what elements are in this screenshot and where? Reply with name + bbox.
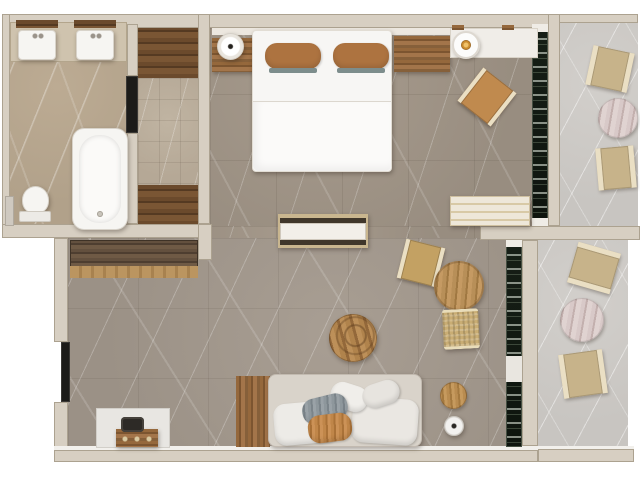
- balcony-chair: [595, 145, 637, 190]
- bed-duvet: [253, 101, 391, 171]
- wall-hall-bedroom: [198, 14, 210, 224]
- wall-left-living-upper: [54, 238, 68, 342]
- wall-left-living-lower: [54, 402, 68, 452]
- pendant-bulb-icon: [461, 40, 471, 50]
- bathroom-door: [126, 76, 138, 133]
- bathtub-basin: [79, 135, 121, 223]
- hall-wardrobe-top: [138, 26, 198, 78]
- wall-right-bedroom: [548, 14, 560, 226]
- faucet-icon: [32, 33, 44, 39]
- double-bed: [252, 30, 392, 172]
- wall-right-living: [522, 240, 538, 446]
- wicker-chair: [442, 308, 480, 350]
- balcony-chair: [558, 349, 608, 399]
- wall-top-balcony: [558, 14, 638, 23]
- bathtub-drain-icon: [97, 211, 103, 217]
- wall-horizontal-right: [480, 226, 640, 240]
- media-console: [278, 214, 368, 248]
- pendant-lamp: [452, 31, 480, 59]
- side-table: [440, 382, 467, 409]
- entry-door: [61, 342, 70, 402]
- bedroom-curtain-bottom: [532, 218, 548, 226]
- wall-bath-hall-lower: [127, 133, 138, 224]
- pillow-left-trim: [269, 68, 317, 73]
- sideboard: [70, 240, 198, 278]
- living-curtain-mid: [506, 356, 522, 382]
- chest-studs: [122, 436, 152, 442]
- toilet-tank: [19, 211, 51, 222]
- faucet-icon: [90, 33, 102, 39]
- desk-bracket-right: [502, 25, 514, 30]
- toiletry-shelf: [5, 196, 14, 226]
- floor-plan: [0, 0, 640, 480]
- balcony-chair: [585, 45, 634, 93]
- balcony-table: [598, 98, 638, 138]
- luggage-bench: [450, 196, 530, 226]
- pillow-left: [265, 43, 321, 69]
- stool: [444, 416, 464, 436]
- balcony-table: [560, 298, 604, 342]
- mirror-left: [16, 20, 58, 28]
- dining-table: [434, 261, 484, 311]
- pillow-right-trim: [337, 68, 385, 73]
- sink-right: [76, 30, 114, 60]
- nightstand-right: [394, 36, 450, 72]
- sofa-wood-panel: [236, 376, 270, 447]
- bag: [121, 417, 144, 432]
- sideboard-front-band: [70, 266, 198, 278]
- hall-wardrobe-bottom: [138, 185, 198, 224]
- wall-bottom-balcony: [538, 446, 634, 462]
- wall-column-center: [198, 224, 212, 260]
- living-window: [506, 240, 522, 447]
- wall-bottom-main: [54, 446, 538, 462]
- console-slot-bottom: [280, 240, 366, 245]
- console-top-panel: [280, 223, 366, 240]
- living-curtain-top: [506, 240, 522, 247]
- bathtub: [72, 128, 128, 230]
- wall-bath-hall-upper: [127, 24, 138, 76]
- pillow-right: [333, 43, 389, 69]
- toilet: [22, 186, 49, 214]
- desk-bracket-left: [452, 25, 464, 30]
- table-lamp: [217, 33, 244, 60]
- mirror-right: [74, 20, 116, 28]
- sink-left: [18, 30, 56, 60]
- coffee-table: [329, 314, 377, 362]
- hallway-floor: [138, 78, 198, 185]
